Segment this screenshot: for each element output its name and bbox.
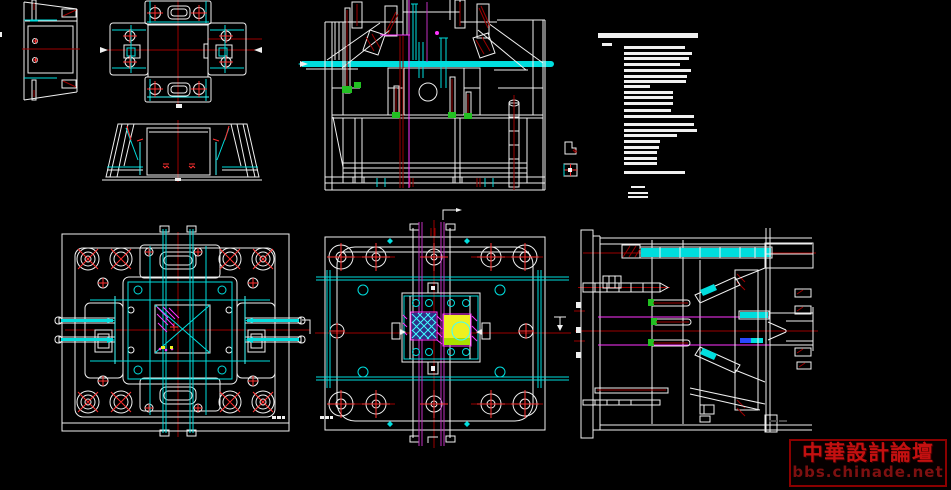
note-line [624, 69, 691, 72]
note-line [602, 43, 612, 46]
side-view-drawing [15, 0, 110, 110]
detail-callout-glyphs [561, 140, 589, 186]
plan-view-moving-half [40, 222, 320, 444]
note-line [624, 140, 660, 143]
watermark-url: bbs.chinade.net [791, 465, 945, 480]
trapezoid-view-drawing [100, 118, 265, 190]
forum-watermark: 中華設計論壇 bbs.chinade.net [789, 439, 947, 487]
note-line [624, 80, 686, 83]
plan-view-cavity-half [315, 220, 571, 448]
note-line [624, 162, 657, 165]
note-line [624, 129, 697, 132]
notes-list [560, 28, 740, 208]
note-line [624, 75, 687, 78]
note-line [598, 33, 698, 38]
edge-tick [0, 32, 2, 37]
section-mark-right [551, 312, 571, 334]
note-line [624, 123, 694, 126]
note-line [624, 157, 657, 160]
note-line [624, 146, 659, 149]
section-mark-top [440, 206, 466, 222]
note-line [624, 171, 685, 174]
note-line [624, 102, 673, 105]
note-line [624, 46, 685, 49]
note-line [624, 96, 673, 99]
watermark-title: 中華設計論壇 [791, 443, 945, 464]
cad-screenshot: { "colors": { "bg": "#000000", "line": "… [0, 0, 951, 490]
note-line [624, 57, 689, 60]
top-plan-view-drawing [100, 0, 265, 112]
note-line [628, 192, 648, 194]
note-line [624, 85, 650, 88]
note-line [631, 186, 645, 188]
note-line [624, 134, 677, 137]
note-line [628, 196, 648, 198]
main-section-drawing [298, 0, 560, 200]
note-line [624, 115, 694, 118]
note-line [624, 151, 657, 154]
note-line [624, 91, 673, 94]
note-line [624, 109, 671, 112]
ejection-section-drawing [573, 224, 818, 439]
note-line [624, 63, 680, 66]
note-line [624, 52, 692, 55]
